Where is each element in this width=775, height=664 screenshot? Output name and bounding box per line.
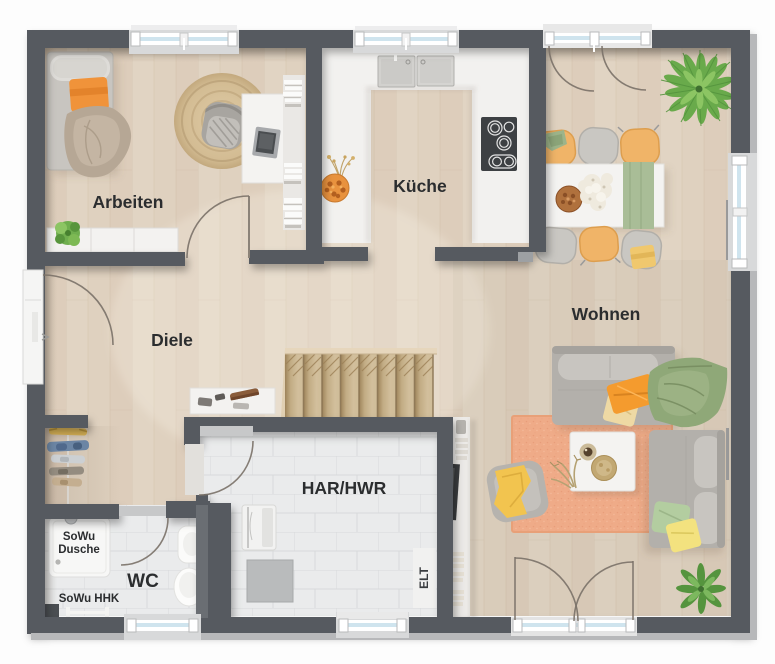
svg-text:Arbeiten: Arbeiten: [93, 192, 164, 212]
svg-text:WC: WC: [127, 571, 159, 592]
svg-text:HAR/HWR: HAR/HWR: [302, 478, 387, 498]
svg-text:Küche: Küche: [393, 176, 447, 196]
svg-text:Dusche: Dusche: [58, 544, 100, 556]
svg-text:Wohnen: Wohnen: [572, 304, 641, 324]
svg-text:Diele: Diele: [151, 330, 193, 350]
svg-text:SoWu: SoWu: [63, 531, 95, 543]
svg-text:ELT: ELT: [417, 566, 431, 588]
svg-text:SoWu HHK: SoWu HHK: [59, 593, 120, 605]
